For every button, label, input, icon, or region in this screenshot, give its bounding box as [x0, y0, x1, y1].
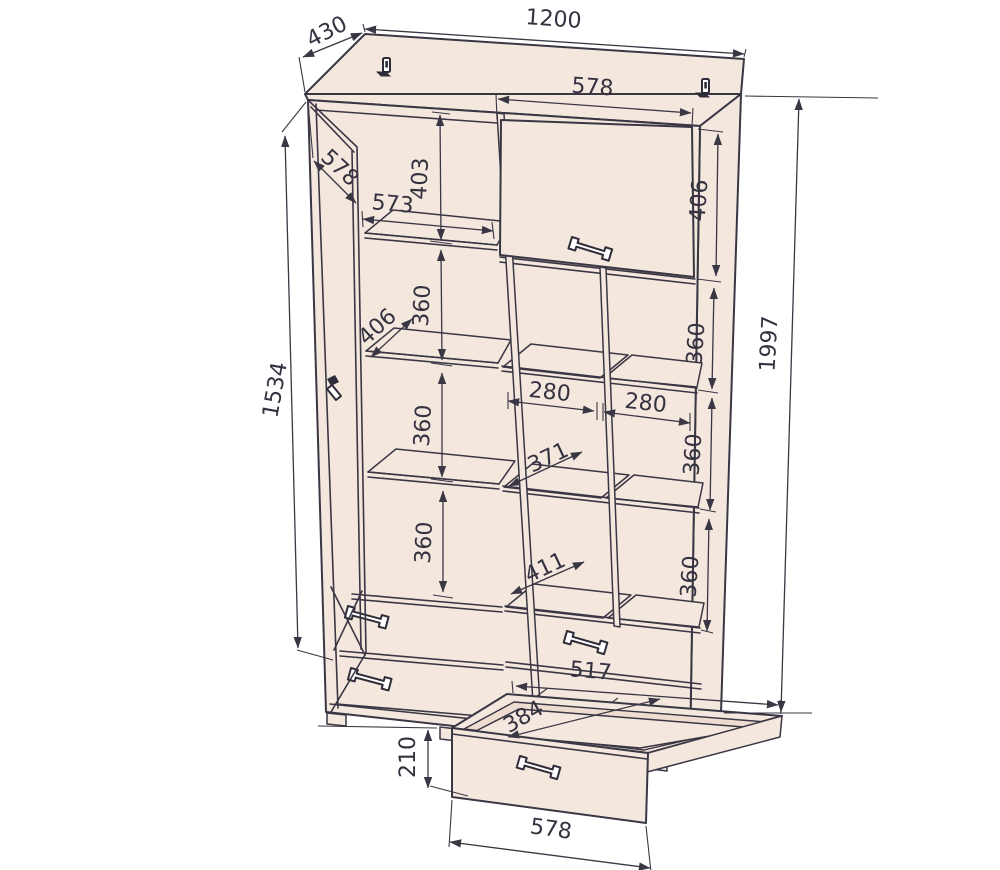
dim-left-opening-width-label: 573 — [371, 190, 415, 219]
dim-right-door-height-label: 406 — [686, 179, 714, 223]
technical-drawing-page: 430 1200 578 406 360 360 360 1997 578 15… — [0, 0, 1000, 870]
dim-drawer-inner-width-label: 517 — [569, 657, 613, 686]
dim-width-label: 1200 — [525, 5, 583, 34]
wardrobe-technical-drawing: 430 1200 578 406 360 360 360 1997 578 15… — [0, 0, 1000, 870]
dim-drawer-front-width-label: 578 — [528, 814, 573, 845]
dim-left-section-3-label: 360 — [411, 521, 438, 564]
dim-right-door-width-label: 578 — [571, 74, 615, 102]
dim-left-section-2-label: 360 — [410, 404, 437, 447]
right-top-door[interactable] — [500, 120, 694, 277]
dim-left-section-1-label: 360 — [409, 284, 436, 327]
dim-total-height-label: 1997 — [756, 315, 784, 372]
dim-cubby-right-width-label: 280 — [623, 389, 667, 418]
dim-right-section-2-label: 360 — [680, 433, 708, 477]
dim-right-section-3-label: 360 — [677, 555, 705, 599]
dim-drawer-front-height-label: 210 — [396, 736, 421, 778]
dim-cubby-left-width-label: 280 — [527, 378, 571, 407]
dim-left-door-height-label: 1534 — [258, 360, 292, 419]
dim-right-section-1-label: 360 — [683, 322, 711, 366]
open-drawer — [452, 688, 782, 823]
